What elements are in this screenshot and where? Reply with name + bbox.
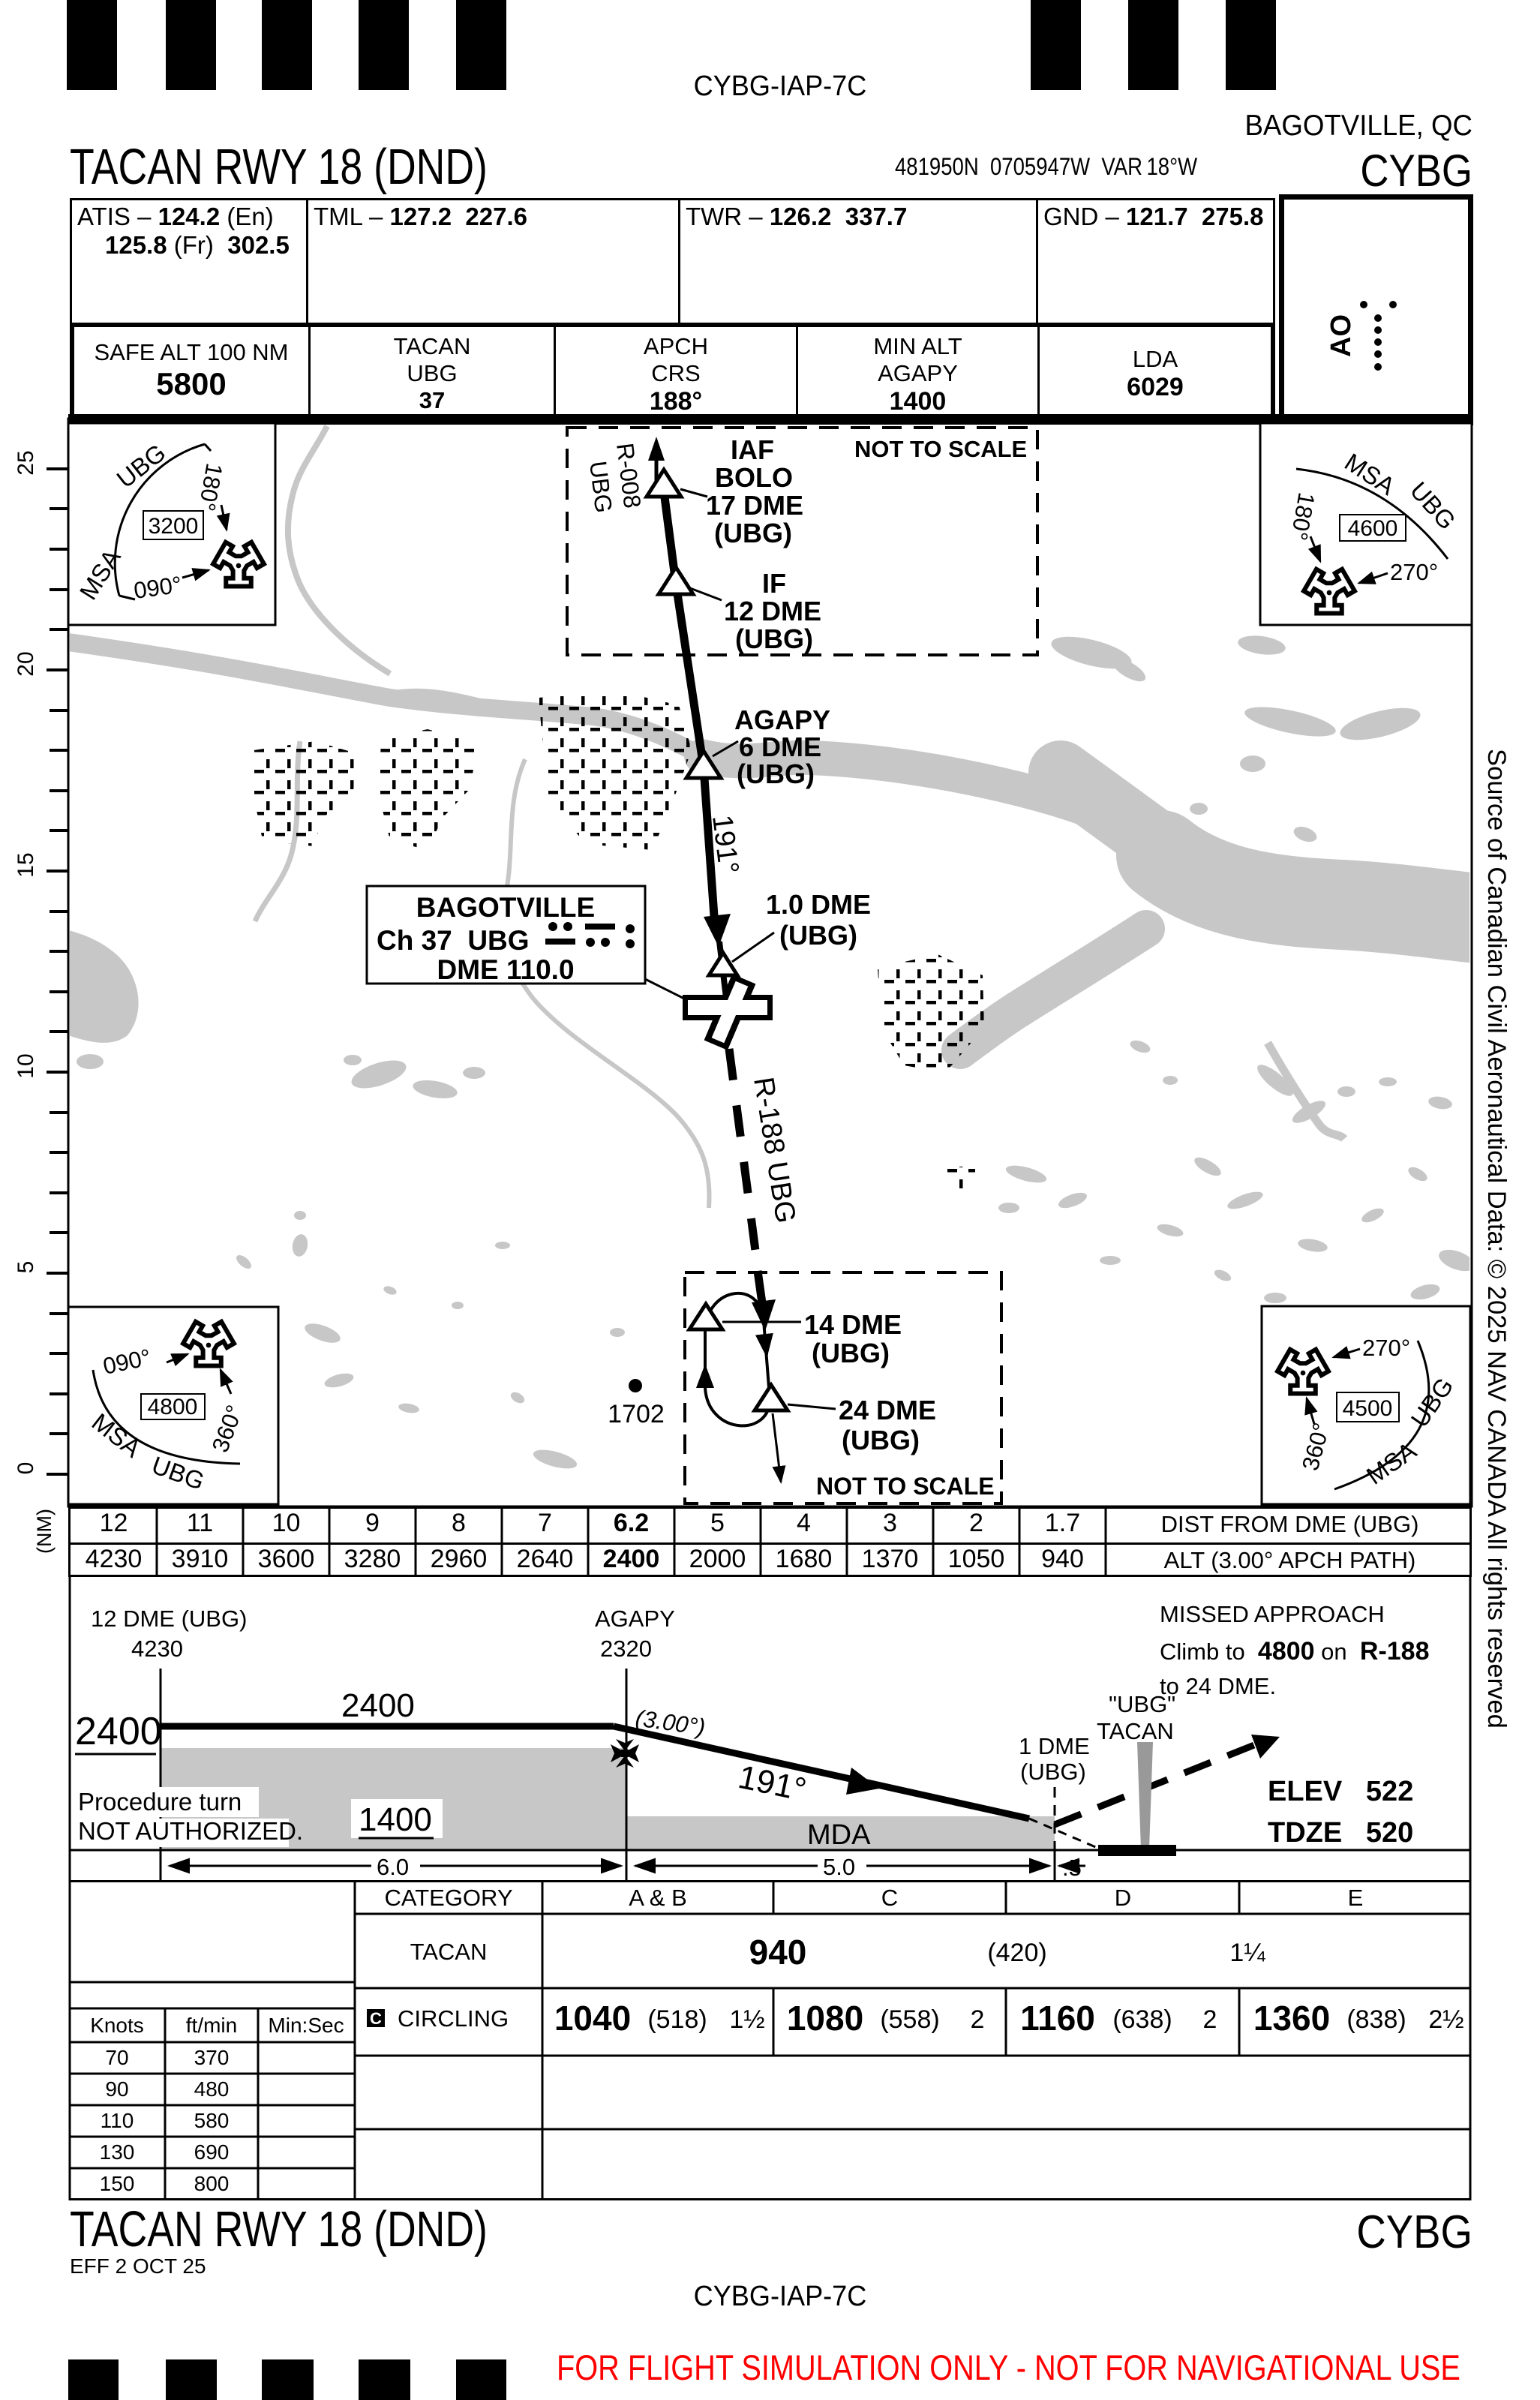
svg-text:(638): (638): [1112, 2005, 1172, 2034]
svg-text:TDZE 520: TDZE 520: [1268, 1817, 1413, 1849]
svg-text:(UBG): (UBG): [735, 623, 813, 654]
svg-text:6.0: 6.0: [377, 1854, 409, 1880]
svg-text:940: 940: [749, 1933, 807, 1972]
svg-text:to 24 DME.: to 24 DME.: [1160, 1673, 1276, 1699]
svg-text:2: 2: [971, 2005, 985, 2034]
svg-text:270°: 270°: [1362, 1335, 1410, 1361]
svg-text:5: 5: [14, 1261, 38, 1274]
svg-text:Min:Sec: Min:Sec: [268, 2014, 344, 2037]
svg-text:6 DME: 6 DME: [739, 731, 821, 762]
svg-text:3200: 3200: [149, 514, 199, 539]
svg-text:(518): (518): [647, 2005, 707, 2034]
svg-text:4600: 4600: [1348, 516, 1398, 541]
svg-text:270°: 270°: [1390, 559, 1438, 585]
svg-text:D: D: [1115, 1885, 1131, 1911]
svg-text:1040: 1040: [554, 1999, 631, 2038]
svg-text:.5: .5: [1062, 1855, 1082, 1880]
svg-text:4500: 4500: [1343, 1396, 1393, 1421]
svg-text:Climb to 4800 on R-188: Climb to 4800 on R-188: [1160, 1637, 1430, 1666]
svg-text:(UBG): (UBG): [779, 920, 857, 951]
svg-text:(NM): (NM): [33, 1509, 56, 1554]
svg-text:TACAN: TACAN: [410, 1939, 488, 1965]
svg-text:12 DME: 12 DME: [724, 596, 821, 626]
svg-text:5.0: 5.0: [823, 1854, 855, 1880]
svg-text:2400: 2400: [75, 1710, 162, 1753]
svg-text:1702: 1702: [608, 1400, 665, 1428]
svg-text:NOT AUTHORIZED.: NOT AUTHORIZED.: [78, 1817, 303, 1845]
svg-text:15: 15: [14, 852, 38, 877]
svg-text:2: 2: [1203, 2005, 1217, 2034]
svg-text:1¼: 1¼: [1229, 1939, 1265, 1967]
svg-text:2400: 2400: [341, 1687, 415, 1724]
svg-text:NOT TO SCALE: NOT TO SCALE: [816, 1473, 995, 1500]
svg-text:800: 800: [194, 2172, 230, 2195]
svg-text:1.0 DME: 1.0 DME: [766, 889, 871, 920]
svg-text:MISSED APPROACH: MISSED APPROACH: [1160, 1601, 1385, 1627]
svg-text:(UBG): (UBG): [842, 1425, 920, 1455]
svg-text:1080: 1080: [787, 1999, 863, 2038]
svg-text:(UBG): (UBG): [812, 1338, 890, 1368]
svg-text:1 DME: 1 DME: [1019, 1733, 1090, 1759]
svg-text:Procedure turn: Procedure turn: [78, 1788, 242, 1816]
svg-text:130: 130: [100, 2140, 135, 2164]
svg-text:370: 370: [194, 2046, 230, 2069]
svg-text:24 DME: 24 DME: [839, 1395, 936, 1425]
svg-text:TACAN: TACAN: [1097, 1718, 1174, 1744]
svg-text:ELEV 522: ELEV 522: [1268, 1776, 1413, 1807]
svg-text:IAF: IAF: [731, 434, 774, 465]
svg-text:(UBG): (UBG): [1020, 1759, 1086, 1785]
svg-text:10: 10: [14, 1053, 38, 1078]
svg-text:CIRCLING: CIRCLING: [398, 2005, 509, 2032]
svg-text:1400: 1400: [359, 1801, 432, 1838]
svg-text:IF: IF: [762, 568, 786, 599]
svg-text:C: C: [881, 1885, 898, 1911]
svg-text:4800: 4800: [148, 1395, 198, 1419]
svg-text:Knots: Knots: [90, 2014, 144, 2037]
svg-text:(420): (420): [987, 1939, 1046, 1967]
svg-text:1160: 1160: [1020, 1999, 1095, 2038]
svg-text:1½: 1½: [729, 2005, 764, 2034]
svg-text:AGAPY: AGAPY: [734, 704, 830, 735]
svg-text:CATEGORY: CATEGORY: [384, 1885, 512, 1911]
svg-text:BAGOTVILLE: BAGOTVILLE: [416, 892, 595, 923]
svg-text:C: C: [370, 2009, 382, 2028]
svg-text:0: 0: [14, 1462, 38, 1475]
svg-text:70: 70: [105, 2046, 128, 2069]
svg-text:17 DME: 17 DME: [706, 490, 803, 521]
svg-text:(UBG): (UBG): [737, 758, 815, 789]
svg-text:UBG: UBG: [584, 459, 617, 514]
svg-text:110: 110: [101, 2109, 134, 2132]
svg-text:20: 20: [14, 651, 38, 676]
svg-text:580: 580: [194, 2109, 230, 2132]
svg-text:2320: 2320: [600, 1636, 652, 1662]
svg-text:14 DME: 14 DME: [804, 1309, 902, 1340]
svg-text:MDA: MDA: [807, 1819, 871, 1851]
svg-text:A & B: A & B: [629, 1885, 687, 1911]
svg-text:1360: 1360: [1253, 1999, 1330, 2038]
svg-text:25: 25: [14, 450, 38, 475]
svg-text:4230: 4230: [131, 1636, 183, 1662]
svg-text:(838): (838): [1346, 2005, 1406, 2034]
svg-text:90: 90: [105, 2077, 128, 2101]
svg-text:DME 110.0: DME 110.0: [437, 954, 574, 985]
svg-text:12 DME (UBG): 12 DME (UBG): [91, 1606, 247, 1632]
svg-text:2½: 2½: [1428, 2005, 1463, 2034]
svg-text:480: 480: [194, 2077, 230, 2101]
svg-text:690: 690: [194, 2140, 230, 2164]
svg-text:BOLO: BOLO: [715, 462, 793, 493]
svg-text:NOT TO SCALE: NOT TO SCALE: [854, 436, 1027, 462]
svg-text:150: 150: [100, 2172, 135, 2195]
svg-text:ft/min: ft/min: [186, 2014, 237, 2037]
svg-text:AGAPY: AGAPY: [595, 1606, 675, 1632]
svg-text:E: E: [1348, 1885, 1364, 1911]
svg-text:(558): (558): [880, 2005, 939, 2034]
svg-text:Ch 37 UBG: Ch 37 UBG: [377, 925, 530, 956]
svg-text:(UBG): (UBG): [714, 518, 792, 548]
svg-text:R-188 UBG: R-188 UBG: [747, 1075, 801, 1226]
